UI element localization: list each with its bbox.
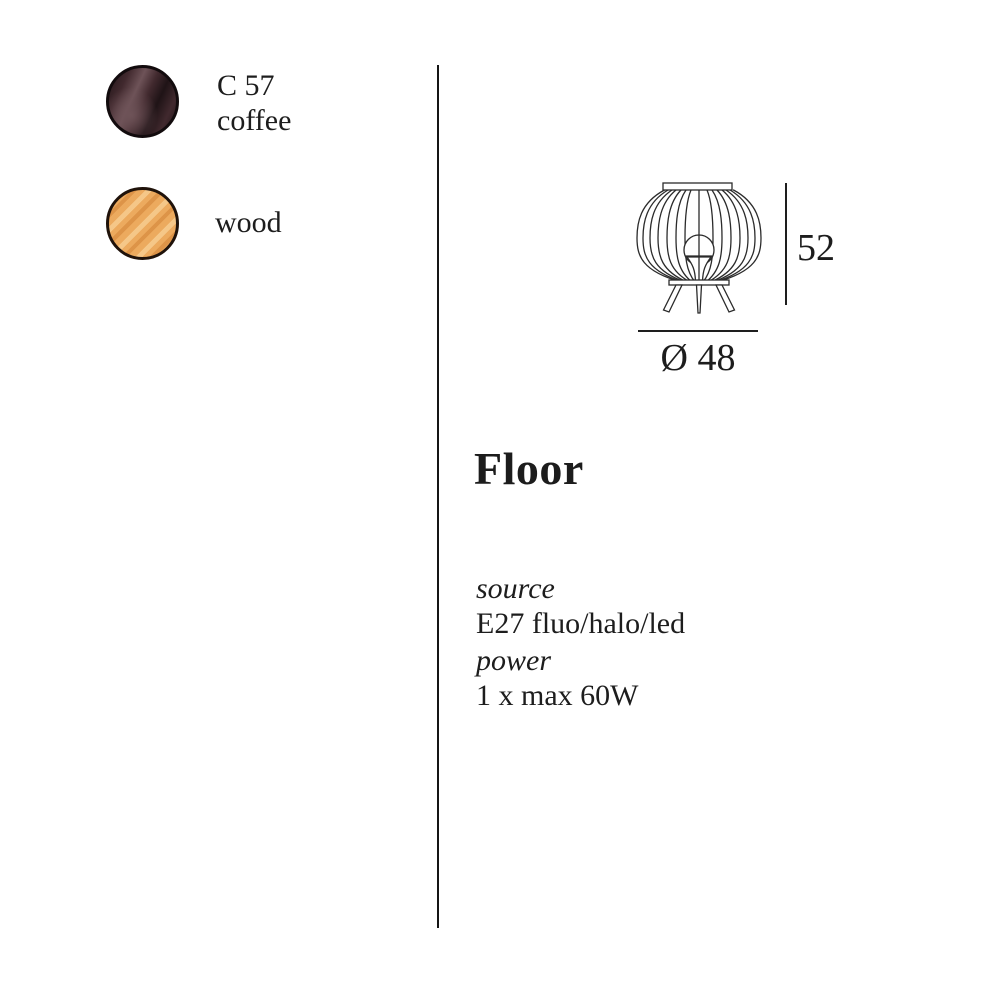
spec-list: source E27 fluo/halo/led power 1 x max 6…	[476, 572, 685, 716]
lamp-leg-centre	[697, 285, 702, 313]
spec-power-label: power	[476, 644, 685, 678]
spec-power-value: 1 x max 60W	[476, 678, 685, 713]
diameter-dimension-line	[638, 330, 758, 332]
spec-power: power 1 x max 60W	[476, 644, 685, 713]
lamp-rib	[715, 190, 755, 282]
spec-source: source E27 fluo/halo/led	[476, 572, 685, 641]
lamp-rib	[643, 190, 683, 282]
lamp-rib	[708, 190, 731, 282]
diameter-dimension-value: Ø 48	[628, 336, 768, 380]
wood-swatch-label: wood	[215, 205, 282, 240]
height-dimension-value: 52	[797, 226, 835, 270]
lamp-rib	[667, 190, 690, 282]
lamp-top-cap	[663, 183, 732, 190]
lamp-rib	[706, 190, 722, 282]
product-spec-page: C 57 coffee wood	[0, 0, 1000, 1000]
divider	[437, 65, 439, 928]
lamp-diagram	[630, 178, 780, 318]
wood-swatch-circle[interactable]	[106, 187, 179, 260]
spec-source-label: source	[476, 572, 685, 606]
coffee-swatch-label: C 57 coffee	[217, 68, 291, 138]
spec-source-value: E27 fluo/halo/led	[476, 606, 685, 641]
lamp-base-bar	[669, 280, 729, 285]
swatch-name: wood	[215, 205, 282, 240]
page-title: Floor	[474, 442, 584, 495]
swatch-name: coffee	[217, 103, 291, 138]
coffee-swatch-circle[interactable]	[106, 65, 179, 138]
lamp-rib	[676, 190, 692, 282]
lamp-leg-left	[664, 285, 683, 312]
height-dimension-line	[785, 183, 787, 305]
lamp-leg-right	[716, 285, 735, 312]
swatch-code: C 57	[217, 68, 291, 103]
